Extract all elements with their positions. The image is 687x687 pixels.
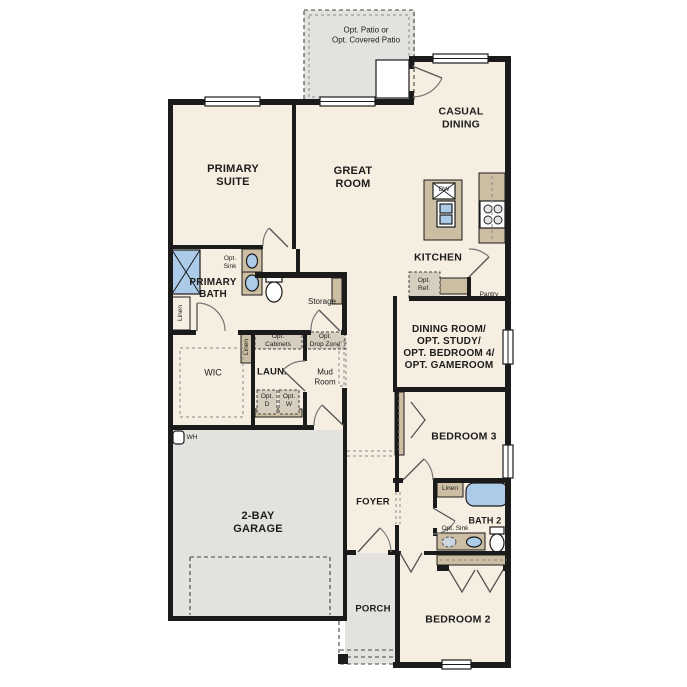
hall-linen-label: Linen [243,339,251,355]
island-sink [437,201,455,227]
foyer-label: FOYER [356,496,390,507]
kitchen-label: KITCHEN [414,252,462,265]
primary-toilet [266,274,282,302]
bedroom3-label: BEDROOM 3 [431,431,496,444]
bath2-toilet [490,527,504,552]
opt-sink-bath2-label: Opt. Sink [442,525,469,533]
opt-washer-label: Opt. W [283,393,295,409]
opt-drop-zone-label: Opt. Drop Zone [310,333,341,349]
opt-sink-primary-label: Opt. Sink [224,255,237,271]
primary-linen-label: Linen [177,305,185,321]
pantry-label: Pantry [480,291,499,299]
storage-label: Storage [308,297,336,307]
bedroom2-label: BEDROOM 2 [425,614,490,627]
opt-cabinets-label: Opt. Cabinets [265,333,291,349]
bathtub [466,483,508,506]
dining-flex-label: DINING ROOM/ OPT. STUDY/ OPT. BEDROOM 4/… [403,324,494,372]
bath2-opt-sink [442,537,456,547]
casual-dining-label: CASUAL DINING [439,105,484,130]
water-heater-box [173,431,184,444]
garage-label: 2-BAY GARAGE [233,510,282,536]
wic-label: WIC [204,368,222,379]
primary-suite-label: PRIMARY SUITE [207,163,259,189]
mud-room-label: Mud Room [314,367,335,386]
foyer-floor [345,430,398,553]
bath2-label: BATH 2 [468,516,501,527]
entry-door-frame [376,60,409,98]
floor-plan-drawing [0,0,687,687]
patio-label: Opt. Patio or Opt. Covered Patio [332,25,400,44]
bath2-linen-label: Linen [442,485,458,493]
porch-label: PORCH [355,603,390,614]
opt-ref-label: Opt. Ref. [418,277,430,293]
great-room-label: GREAT ROOM [334,165,373,191]
casual-dining-floor [409,58,511,108]
dishwasher-label: DW [439,186,450,194]
laundry-label: LAUN. [257,366,287,377]
opt-dryer-label: Opt. D [261,393,273,409]
kitchen-lower-counter [440,278,469,294]
primary-bath-label: PRIMARY BATH [189,277,236,301]
water-heater-label: WH [187,434,198,442]
floor-plan: Opt. Patio or Opt. Covered Patio CASUAL … [0,0,687,687]
porch-step-marker [338,654,348,664]
